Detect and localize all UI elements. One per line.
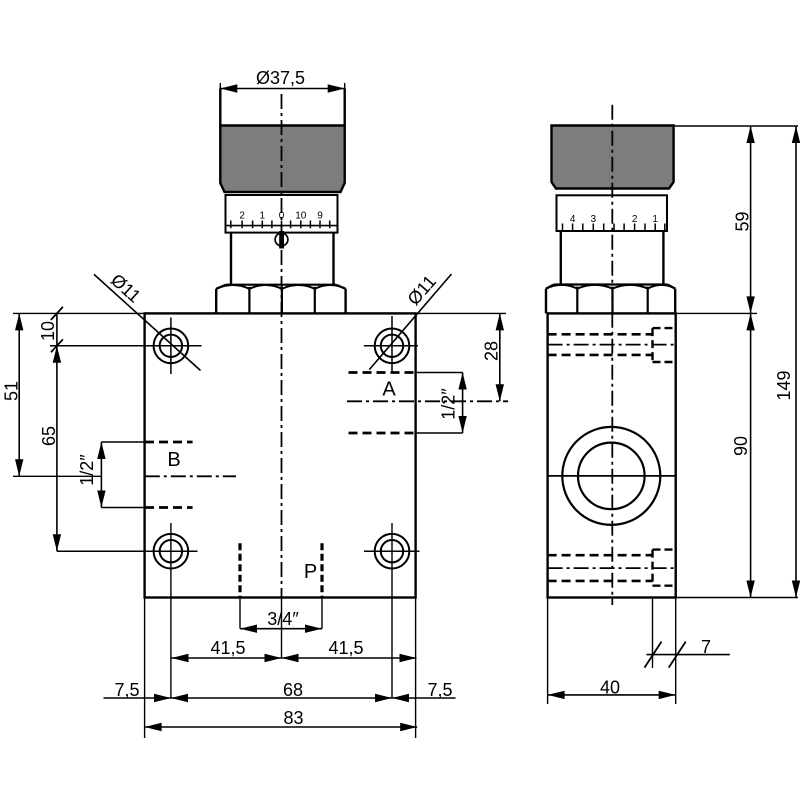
svg-text:1/2″: 1/2″	[438, 388, 458, 420]
svg-text:3: 3	[591, 214, 597, 225]
svg-text:40: 40	[600, 678, 620, 698]
svg-text:83: 83	[283, 708, 303, 728]
svg-text:4: 4	[570, 214, 576, 225]
svg-text:41,5: 41,5	[210, 638, 245, 658]
svg-text:P: P	[304, 561, 317, 583]
svg-text:B: B	[167, 449, 180, 471]
svg-text:7,5: 7,5	[427, 680, 452, 700]
svg-text:1: 1	[652, 214, 658, 225]
svg-text:3/4″: 3/4″	[267, 609, 299, 629]
svg-text:2: 2	[239, 211, 245, 222]
svg-text:68: 68	[283, 680, 303, 700]
svg-text:90: 90	[731, 436, 751, 456]
svg-text:7: 7	[701, 637, 711, 657]
svg-text:Ø37,5: Ø37,5	[256, 68, 305, 88]
svg-text:149: 149	[774, 370, 794, 400]
svg-text:1: 1	[260, 211, 266, 222]
svg-text:41,5: 41,5	[328, 638, 363, 658]
svg-text:28: 28	[481, 341, 501, 361]
svg-text:2: 2	[632, 214, 638, 225]
svg-text:59: 59	[732, 211, 752, 231]
svg-text:A: A	[382, 379, 396, 401]
svg-text:9: 9	[317, 211, 323, 222]
svg-text:10: 10	[38, 321, 58, 341]
svg-text:1/2″: 1/2″	[77, 454, 97, 486]
svg-text:10: 10	[295, 211, 307, 222]
svg-text:65: 65	[39, 426, 59, 446]
svg-text:51: 51	[1, 381, 21, 401]
svg-text:7,5: 7,5	[114, 680, 139, 700]
